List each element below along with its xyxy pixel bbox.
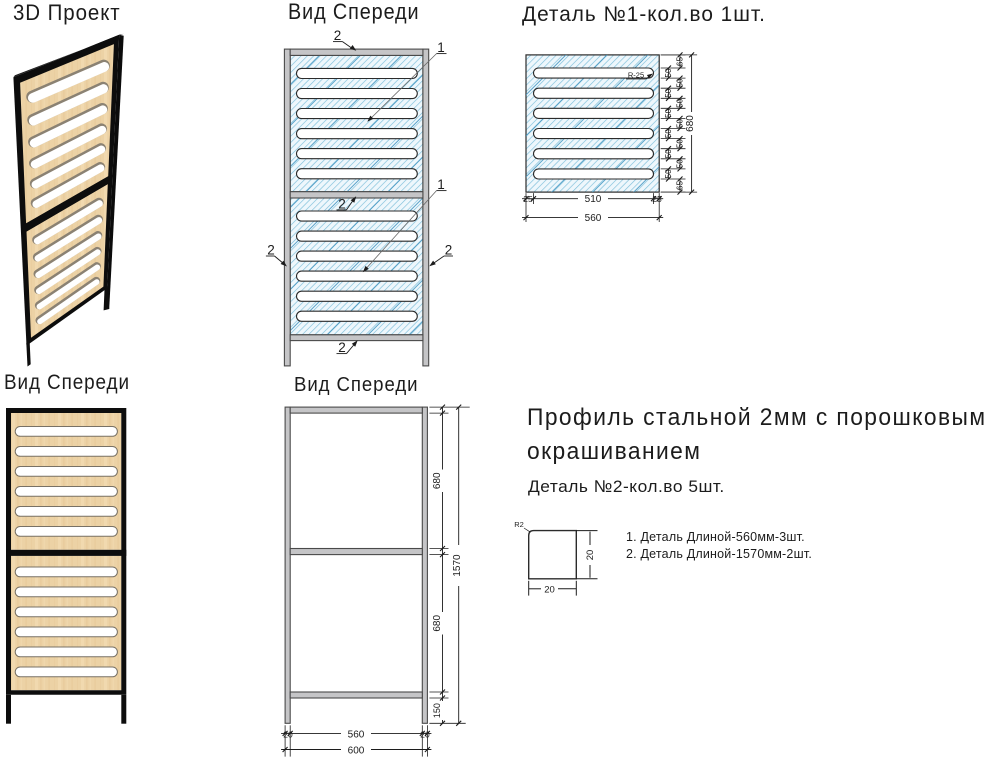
svg-text:50: 50 <box>664 88 673 98</box>
svg-text:2: 2 <box>334 28 342 43</box>
svg-text:600: 600 <box>348 746 365 757</box>
svg-text:1570: 1570 <box>452 554 463 577</box>
svg-text:680: 680 <box>685 115 696 132</box>
svg-text:R2: R2 <box>514 520 524 529</box>
svg-text:510: 510 <box>585 194 602 205</box>
svg-text:50: 50 <box>676 159 685 169</box>
svg-text:25: 25 <box>523 194 533 204</box>
svg-text:50: 50 <box>676 139 685 149</box>
svg-text:50: 50 <box>676 78 685 88</box>
svg-text:560: 560 <box>348 730 365 741</box>
svg-text:20: 20 <box>420 730 430 740</box>
svg-text:2: 2 <box>267 242 275 257</box>
svg-text:560: 560 <box>585 213 602 224</box>
svg-text:2: 2 <box>338 196 346 211</box>
svg-text:20: 20 <box>585 550 596 561</box>
svg-text:50: 50 <box>676 98 685 108</box>
svg-text:50: 50 <box>664 68 673 78</box>
svg-text:25: 25 <box>652 194 662 204</box>
svg-text:1: 1 <box>437 40 445 55</box>
svg-text:50: 50 <box>676 119 685 129</box>
svg-text:65: 65 <box>676 57 685 67</box>
svg-text:R-25: R-25 <box>628 71 644 80</box>
svg-text:50: 50 <box>664 169 673 179</box>
svg-text:680: 680 <box>432 472 443 489</box>
svg-text:2: 2 <box>445 242 453 257</box>
svg-text:50: 50 <box>664 108 673 118</box>
svg-text:65: 65 <box>676 181 685 191</box>
svg-text:50: 50 <box>664 149 673 159</box>
svg-text:20: 20 <box>544 585 555 596</box>
svg-text:50: 50 <box>664 129 673 139</box>
svg-text:150: 150 <box>432 703 442 718</box>
svg-text:680: 680 <box>432 615 443 632</box>
svg-text:20: 20 <box>283 730 293 740</box>
svg-text:1: 1 <box>437 177 445 192</box>
svg-text:2: 2 <box>338 340 346 355</box>
